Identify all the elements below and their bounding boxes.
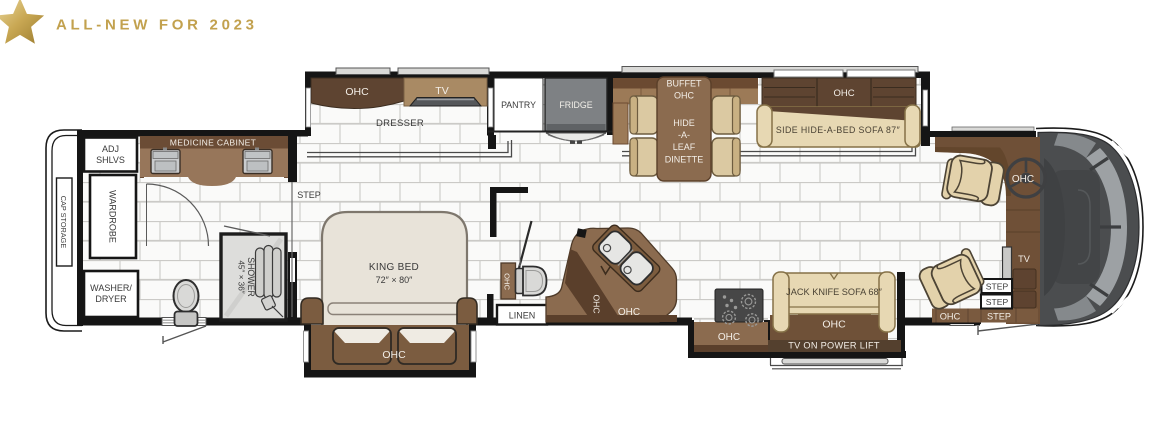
svg-text:ALL-NEW FOR 2023: ALL-NEW FOR 2023 [56, 17, 258, 34]
svg-text:72″ × 80″: 72″ × 80″ [376, 275, 413, 285]
svg-text:OHC: OHC [674, 91, 695, 101]
svg-text:STEP: STEP [986, 282, 1009, 292]
svg-text:FRIDGE: FRIDGE [559, 100, 592, 110]
svg-text:DRESSER: DRESSER [376, 118, 424, 129]
svg-text:OHC: OHC [382, 349, 406, 361]
svg-text:CAP STORAGE: CAP STORAGE [59, 196, 68, 249]
svg-text:STEP: STEP [297, 190, 321, 200]
svg-text:TV ON POWER LIFT: TV ON POWER LIFT [788, 341, 880, 351]
svg-text:PANTRY: PANTRY [501, 100, 536, 110]
svg-text:45″ × 36″: 45″ × 36″ [237, 260, 246, 293]
svg-text:BUFFET: BUFFET [667, 79, 703, 89]
svg-text:OHC: OHC [618, 307, 640, 318]
svg-text:ADJ: ADJ [102, 144, 119, 154]
svg-text:KING BED: KING BED [369, 262, 419, 273]
svg-text:OHC: OHC [822, 319, 846, 331]
svg-text:OHC: OHC [940, 312, 961, 322]
svg-text:SHLVS: SHLVS [96, 155, 125, 165]
svg-text:SHOWER: SHOWER [246, 257, 256, 297]
svg-text:LINEN: LINEN [509, 311, 536, 321]
svg-text:OHC: OHC [503, 273, 512, 290]
svg-text:OHC: OHC [718, 332, 740, 343]
svg-text:OHC: OHC [833, 88, 854, 99]
svg-text:TV: TV [435, 85, 448, 97]
svg-text:WARDROBE: WARDROBE [108, 190, 118, 243]
svg-text:JACK KNIFE SOFA 68″: JACK KNIFE SOFA 68″ [786, 287, 882, 297]
svg-text:LEAF: LEAF [673, 142, 696, 152]
svg-text:STEP: STEP [987, 312, 1011, 322]
svg-text:MEDICINE CABINET: MEDICINE CABINET [170, 138, 257, 148]
svg-text:DRYER: DRYER [95, 294, 127, 304]
svg-text:-A-: -A- [678, 130, 690, 140]
svg-text:STEP: STEP [986, 297, 1009, 307]
svg-text:OHC: OHC [592, 294, 602, 313]
svg-text:HIDE: HIDE [673, 118, 695, 128]
svg-text:WASHER/: WASHER/ [90, 283, 132, 293]
svg-text:SIDE HIDE-A-BED SOFA 87″: SIDE HIDE-A-BED SOFA 87″ [776, 125, 900, 135]
svg-text:OHC: OHC [345, 86, 369, 98]
svg-text:TV: TV [1018, 254, 1031, 264]
svg-text:DINETTE: DINETTE [665, 155, 704, 165]
svg-text:OHC: OHC [1012, 174, 1034, 185]
